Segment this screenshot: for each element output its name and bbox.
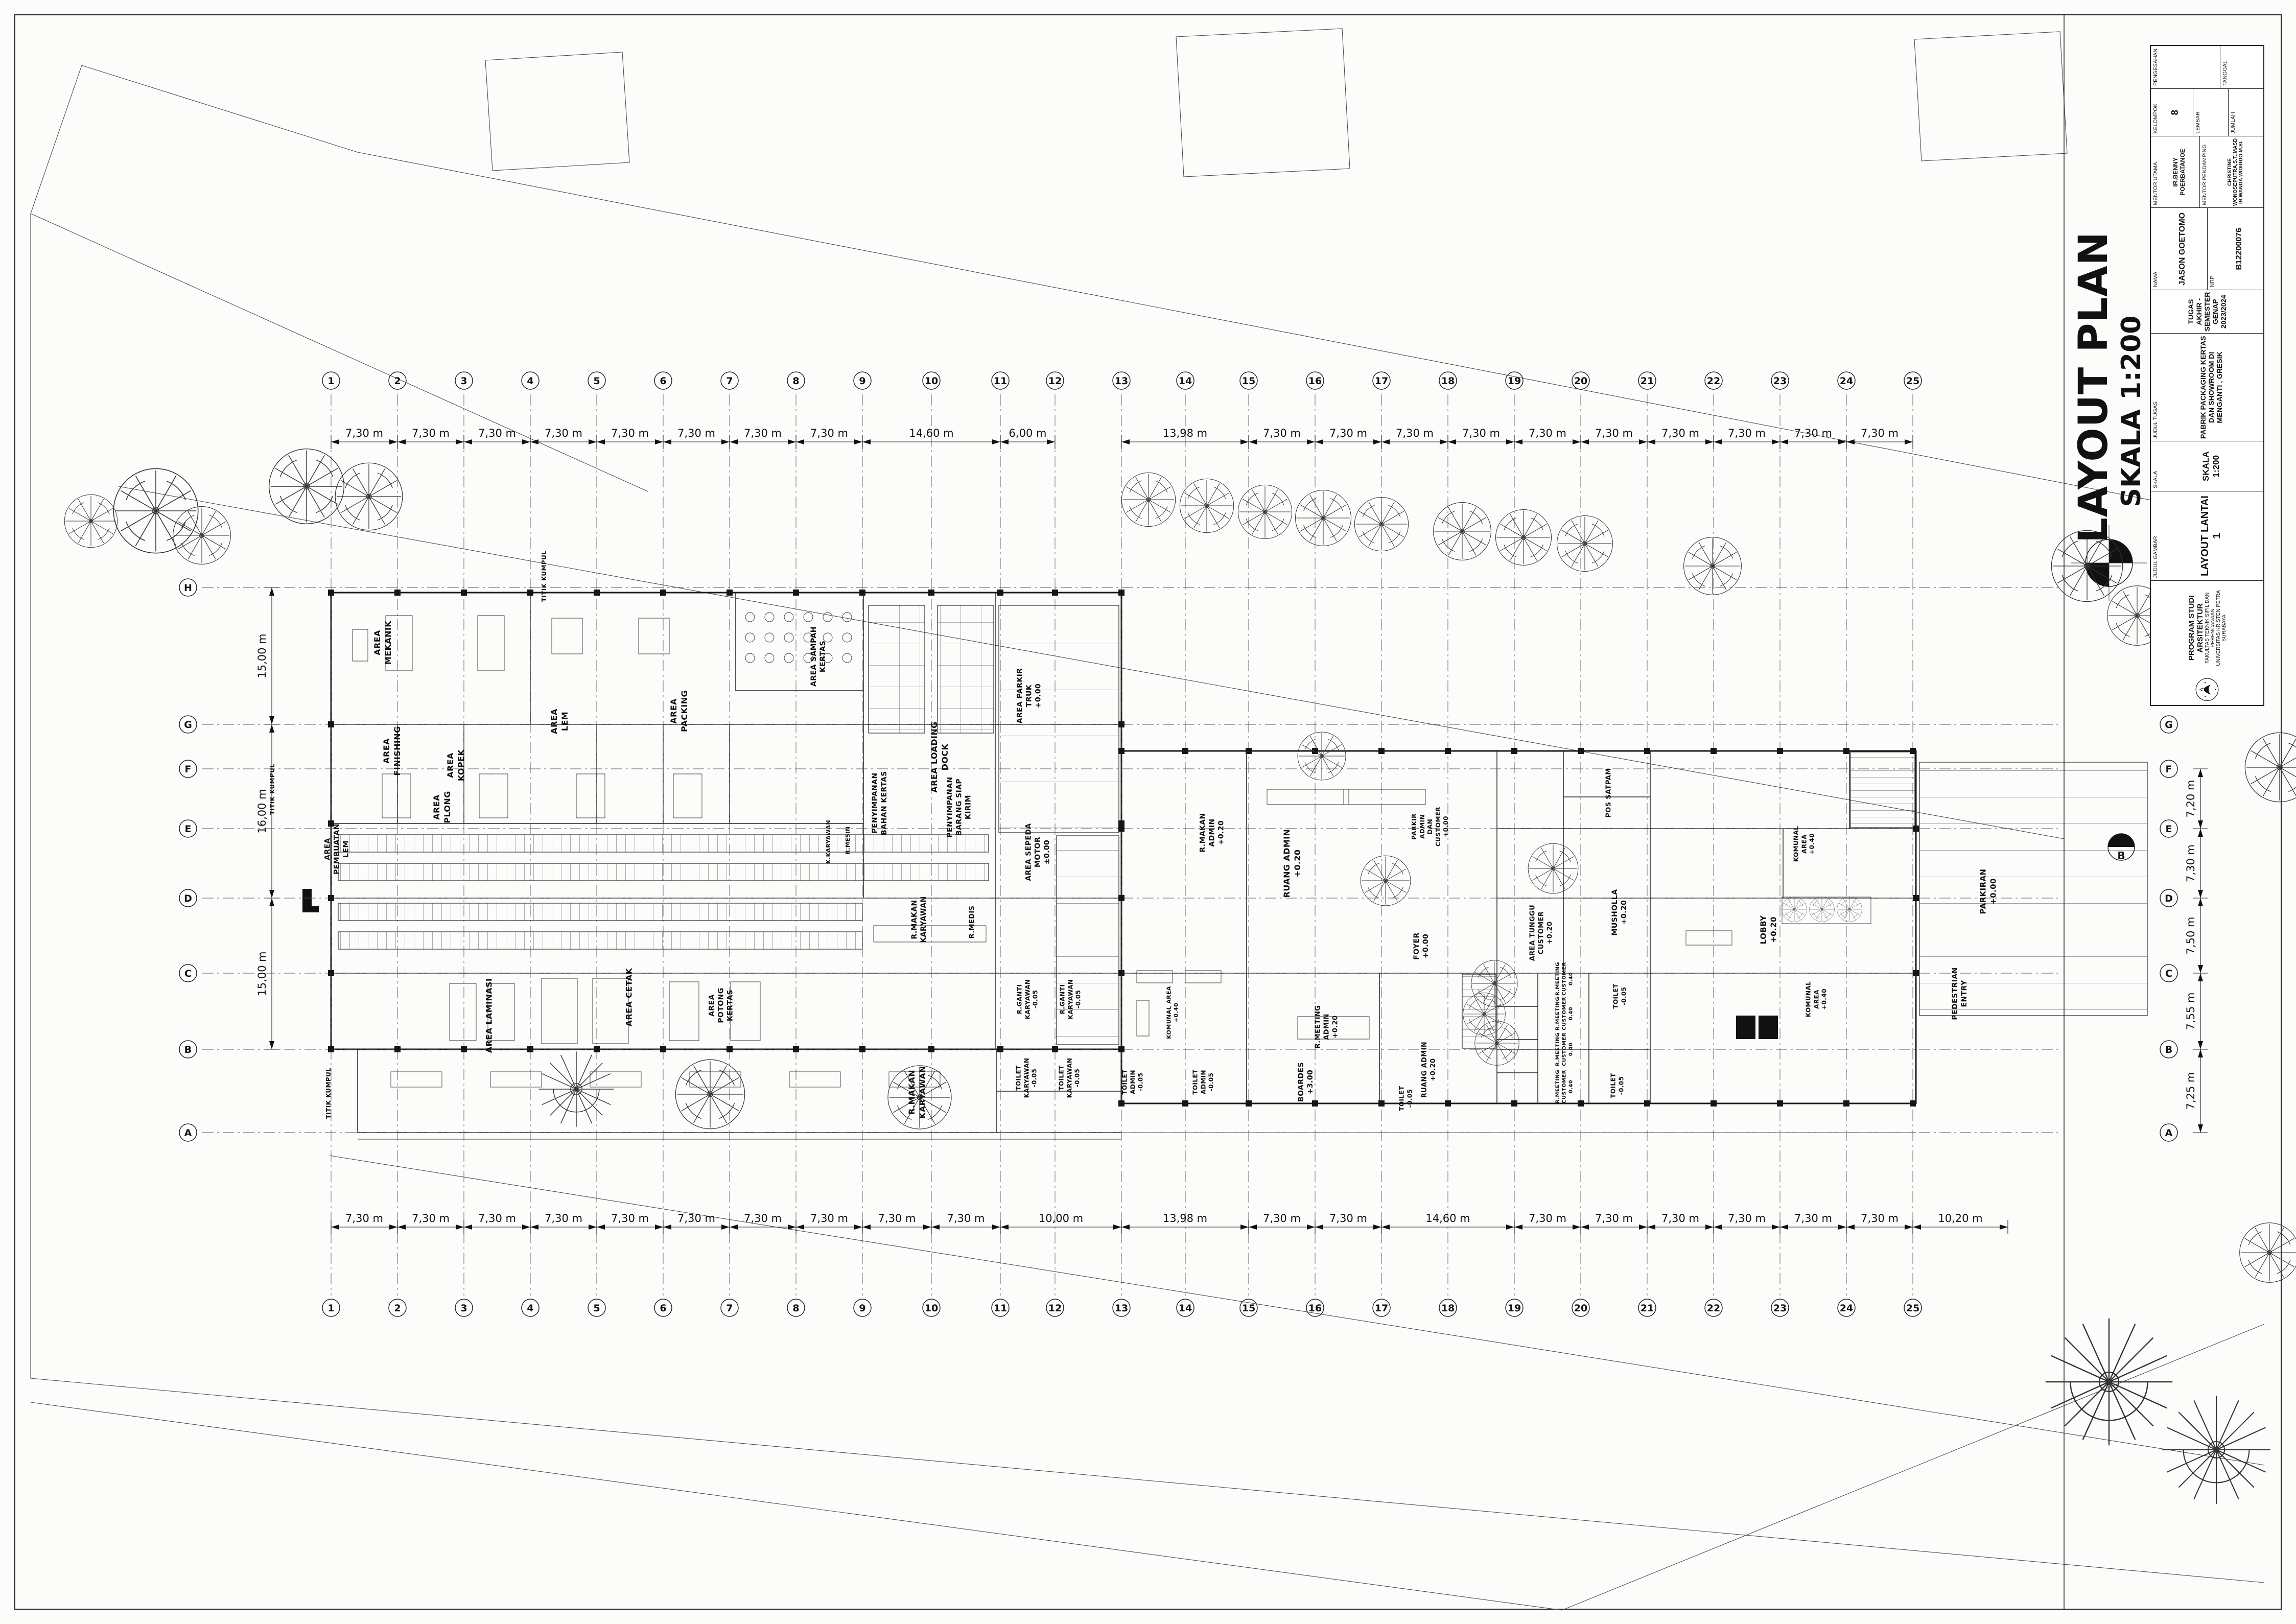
dimension-text: 7,30 m (1661, 427, 1699, 439)
dimension-text: 7,30 m (611, 1212, 649, 1225)
svg-text:4: 4 (527, 1303, 533, 1314)
column-marker (394, 1046, 401, 1052)
column-marker (1246, 748, 1252, 754)
tree-icon (2245, 733, 2296, 802)
svg-text:16: 16 (1308, 1303, 1322, 1314)
dimension-text: 7,30 m (947, 1212, 985, 1225)
kelompok-label: KELOMPOK (2151, 89, 2159, 136)
column-marker (328, 1046, 334, 1052)
city-name: SURABAYA (2221, 584, 2227, 672)
svg-text:12: 12 (1048, 1303, 1062, 1314)
skala-value: SKALA 1:200 (2159, 441, 2263, 490)
column-marker (1052, 590, 1058, 596)
tree-icon (888, 1066, 951, 1129)
judul-tugas-value: PABRIK PACKAGING KERTAS DAN SHOWROOM DI … (2159, 334, 2263, 441)
svg-text:22: 22 (1707, 1303, 1720, 1314)
column-marker (727, 1046, 733, 1052)
column-marker (1445, 1100, 1451, 1107)
column-marker (1913, 895, 1919, 901)
dimension-text: 7,30 m (878, 1212, 916, 1225)
lobby-planter (1782, 897, 1871, 924)
kelompok-row: KELOMPOK 8 (2151, 89, 2193, 136)
column-marker (1312, 1100, 1318, 1107)
column-marker (461, 1046, 467, 1052)
column-marker (1578, 748, 1584, 754)
column-marker (1118, 895, 1124, 901)
lift (1759, 1016, 1778, 1039)
approval-cell: PENGESAHAN TANGGAL (2151, 46, 2263, 88)
dimension-text: 7,55 m (2185, 993, 2197, 1030)
dimension-text: 7,30 m (1595, 427, 1633, 439)
dimension-text: 7,30 m (677, 1212, 715, 1225)
svg-text:11: 11 (994, 375, 1007, 387)
svg-text:25: 25 (1906, 1303, 1919, 1314)
tree-icon (1495, 509, 1551, 565)
svg-text:F: F (185, 764, 192, 775)
neighbour-buildings (485, 29, 2067, 177)
dimension-text: 7,30 m (412, 1212, 450, 1225)
mentor-pendamping-row: MENTOR PENDAMPING CHRISTINE WONOSEPUTRA,… (2200, 136, 2263, 207)
drawing-title: LAYOUT PLAN (2074, 231, 2114, 543)
dimension-text: 16,00 m (256, 789, 268, 833)
institution-cell: PROGRAM STUDI ARSITEKTUR FAKULTAS TEKNIK… (2151, 580, 2263, 705)
svg-text:25: 25 (1906, 375, 1919, 387)
dimension-text: 7,30 m (1263, 1212, 1301, 1225)
car-parking-stalls (1919, 762, 2147, 1016)
column-marker (1843, 1100, 1849, 1107)
canopy-lines (358, 1133, 1916, 1139)
svg-text:4: 4 (527, 375, 533, 387)
dimension-text: 13,98 m (1163, 427, 1207, 439)
storage-rack (338, 932, 862, 949)
svg-text:21: 21 (1641, 1303, 1654, 1314)
dimension-text: 7,30 m (1529, 1212, 1566, 1225)
column-marker (328, 895, 334, 901)
tanggal-value (2228, 46, 2263, 88)
tree-icon (269, 449, 344, 524)
storage-rack (338, 903, 862, 921)
column-marker (1378, 748, 1385, 754)
column-marker (1644, 1100, 1650, 1107)
column-marker (328, 590, 334, 596)
svg-text:24: 24 (1840, 375, 1853, 387)
tree-icon (64, 495, 117, 547)
column-marker (328, 721, 334, 727)
dimension-text: 7,30 m (1728, 427, 1766, 439)
svg-text:2: 2 (394, 375, 401, 387)
motorbike-stalls (1057, 836, 1119, 1045)
column-marker (1910, 1100, 1916, 1107)
svg-text:2: 2 (394, 1303, 401, 1314)
dimension-text: 7,30 m (1329, 1212, 1367, 1225)
dimension-text: 7,30 m (345, 427, 383, 439)
nama-label: NAMA (2151, 208, 2159, 290)
column-marker (1118, 1100, 1124, 1107)
svg-text:8: 8 (792, 1303, 799, 1314)
svg-text:12: 12 (1048, 375, 1062, 387)
faculty-name: FAKULTAS TEKNIK SIPIL DAN PERENCANAAN (2205, 584, 2216, 672)
dimension-text: 7,30 m (1396, 427, 1434, 439)
mentor-utama-label: MENTOR UTAMA (2151, 136, 2159, 207)
svg-text:14: 14 (1179, 375, 1192, 387)
datum-marker (302, 889, 319, 912)
storage-rack (338, 863, 989, 881)
truck-parking-stalls (999, 605, 1119, 833)
mentor-cell: MENTOR UTAMA IR.BENNY POERBATANOE MENTOR… (2151, 136, 2263, 207)
judul-tugas-cell: JUDUL TUGAS PABRIK PACKAGING KERTAS DAN … (2151, 333, 2263, 441)
svg-text:18: 18 (1441, 1303, 1455, 1314)
column-marker (660, 590, 666, 596)
column-marker (1052, 1046, 1058, 1052)
tree-icon (1782, 897, 1807, 922)
mentor-pendamping-1: CHRISTINE WONOSEPUTRA,S.T.,MASD (2227, 138, 2238, 206)
svg-text:23: 23 (1773, 1303, 1787, 1314)
svg-text:F: F (2166, 764, 2172, 775)
tree-icon (538, 1051, 614, 1126)
dimension-text: 14,60 m (1425, 1212, 1470, 1225)
dimension-text: 7,30 m (478, 1212, 516, 1225)
dimension-text: 7,30 m (1462, 427, 1500, 439)
svg-text:23: 23 (1773, 375, 1787, 387)
dimension-text: 10,00 m (1039, 1212, 1083, 1225)
svg-text:11: 11 (994, 1303, 1007, 1314)
drawing-sheet: B 11223344556677889910101111121213131414… (0, 0, 2296, 1624)
waste-paper-racks (869, 605, 925, 733)
tree-icon (1298, 732, 1346, 780)
svg-text:C: C (184, 968, 192, 979)
dimension-text: 7,30 m (1728, 1212, 1766, 1225)
svg-text:21: 21 (1641, 375, 1654, 387)
tree-icon (1238, 485, 1292, 538)
svg-text:20: 20 (1574, 375, 1587, 387)
column-marker (461, 590, 467, 596)
tree-icon (2046, 1319, 2172, 1445)
svg-text:3: 3 (460, 375, 467, 387)
tree-icon (335, 463, 403, 530)
mentor-pendamping-label: MENTOR PENDAMPING (2200, 136, 2208, 207)
svg-text:24: 24 (1840, 1303, 1853, 1314)
mentor-utama-value: IR.BENNY POERBATANOE (2159, 136, 2199, 207)
column-marker (660, 1046, 666, 1052)
course-cell: TUGAS AKHIR - SEMESTER GENAP 2023/2024 (2151, 290, 2263, 333)
column-marker (1578, 1100, 1584, 1107)
column-marker (1445, 748, 1451, 754)
dimension-text: 7,30 m (810, 1212, 848, 1225)
tanggal-row: TANGGAL (2220, 46, 2263, 88)
dimension-text: 7,25 m (2185, 1072, 2197, 1110)
tree-icon (1684, 537, 1742, 595)
column-marker (1118, 1046, 1124, 1052)
tree-icon (1180, 479, 1233, 532)
dimension-text: 7,30 m (677, 427, 715, 439)
column-marker (859, 1046, 865, 1052)
svg-text:10: 10 (925, 1303, 938, 1314)
nrp-label: NRP (2208, 208, 2215, 290)
column-marker (1118, 721, 1124, 727)
column-marker (793, 590, 799, 596)
jumlah-value (2236, 89, 2263, 136)
column-marker (1182, 748, 1188, 754)
dimension-text: 7,30 m (1263, 427, 1301, 439)
dimension-text: 7,30 m (1861, 427, 1899, 439)
dimension-text: 13,98 m (1163, 1212, 1207, 1225)
dimension-text: 14,60 m (909, 427, 953, 439)
judul-gambar-cell: JUDUL GAMBAR LAYOUT LANTAI 1 (2151, 491, 2263, 580)
svg-text:20: 20 (1574, 1303, 1587, 1314)
svg-text:19: 19 (1508, 1303, 1521, 1314)
svg-text:G: G (184, 719, 192, 731)
column-marker (997, 590, 1003, 596)
dimension-text: 7,30 m (1529, 427, 1566, 439)
svg-text:H: H (184, 582, 192, 594)
svg-text:17: 17 (1375, 375, 1388, 387)
svg-text:7: 7 (726, 375, 733, 387)
svg-text:E: E (2166, 823, 2172, 835)
column-marker (1913, 970, 1919, 976)
mentor-pendamping-2: IR.WANDA WIDIGDO,M.SI. (2238, 140, 2244, 204)
pengesahan-row: PENGESAHAN (2151, 46, 2220, 88)
svg-text:D: D (2165, 893, 2173, 904)
judul-gambar-label: JUDUL GAMBAR (2151, 491, 2159, 580)
svg-text:6: 6 (660, 1303, 666, 1314)
tree-icon (173, 507, 231, 564)
svg-text:9: 9 (859, 1303, 865, 1314)
column-marker (1246, 1100, 1252, 1107)
showroom-partitions (1121, 751, 1916, 1103)
floor-plan-drawing: B 11223344556677889910101111121213131414… (0, 0, 2296, 1624)
tanggal-label: TANGGAL (2220, 46, 2228, 88)
column-marker (527, 590, 533, 596)
dimension-text: 7,30 m (412, 427, 450, 439)
nrp-row: NRP B12200076 (2208, 208, 2264, 290)
dimension-text: 6,00 m (1009, 427, 1047, 439)
column-marker (1777, 748, 1783, 754)
dimension-text: 7,30 m (545, 1212, 582, 1225)
column-marker (928, 1046, 934, 1052)
dimension-text: 15,00 m (256, 633, 268, 678)
dimension-text: 7,20 m (2185, 780, 2197, 818)
svg-text:16: 16 (1308, 375, 1322, 387)
course-title: TUGAS AKHIR - SEMESTER GENAP 2023/2024 (2151, 290, 2263, 333)
column-marker (1843, 748, 1849, 754)
svg-text:A: A (184, 1127, 192, 1139)
kelompok-value: 8 (2159, 89, 2193, 136)
svg-text:7: 7 (726, 1303, 733, 1314)
petra-logo (2191, 677, 2223, 702)
svg-text:3: 3 (460, 1303, 467, 1314)
tree-icon (1354, 497, 1408, 551)
svg-text:E: E (185, 823, 192, 835)
column-marker (928, 590, 934, 596)
student-cell: NAMA JASON GOETOMO NRP B12200076 (2151, 207, 2263, 290)
dimension-text: 7,30 m (545, 427, 582, 439)
column-marker (394, 590, 401, 596)
jumlah-row: JUMLAH (2229, 89, 2263, 136)
column-marker (1118, 970, 1124, 976)
tree-icon (1121, 473, 1175, 526)
tree-icon (1528, 843, 1578, 893)
machines (353, 616, 760, 1044)
tree-icon (1837, 897, 1862, 922)
tree-icon (2162, 1396, 2270, 1504)
column-marker (1511, 748, 1517, 754)
lembar-label: LEMBAR (2193, 89, 2201, 136)
nama-row: NAMA JASON GOETOMO (2151, 208, 2208, 290)
stair-main (1850, 752, 1915, 828)
column-marker (997, 1046, 1003, 1052)
svg-text:14: 14 (1179, 1303, 1192, 1314)
svg-text:C: C (2165, 968, 2172, 979)
lembar-value (2201, 89, 2228, 136)
pengesahan-value (2159, 46, 2220, 88)
svg-text:8: 8 (792, 375, 799, 387)
column-marker (1644, 748, 1650, 754)
column-marker (793, 1046, 799, 1052)
column-marker (1777, 1100, 1783, 1107)
svg-text:1: 1 (327, 1303, 334, 1314)
svg-text:A: A (2165, 1127, 2173, 1139)
lembar-row: LEMBAR (2193, 89, 2229, 136)
svg-text:D: D (184, 893, 192, 904)
svg-text:1: 1 (327, 375, 334, 387)
dimension-text: 7,30 m (611, 427, 649, 439)
dimension-text: 7,30 m (478, 427, 516, 439)
pengesahan-label: PENGESAHAN (2151, 46, 2159, 88)
tree-icon (1434, 503, 1491, 560)
column-marker (1711, 748, 1717, 754)
column-marker (1910, 748, 1916, 754)
dimension-text: 7,50 m (2185, 917, 2197, 955)
svg-text:G: G (2165, 719, 2173, 731)
dimension-text: 7,30 m (744, 427, 782, 439)
dimension-text: 7,30 m (2185, 844, 2197, 882)
column-marker (1118, 590, 1124, 596)
svg-text:18: 18 (1441, 375, 1455, 387)
column-marker (1378, 1100, 1385, 1107)
column-marker (527, 1046, 533, 1052)
dimension-text: 10,20 m (1938, 1212, 1982, 1225)
program-name: PROGRAM STUDI ARSITEKTUR (2187, 584, 2205, 672)
showroom-outline (1121, 751, 1916, 1103)
jumlah-label: JUMLAH (2229, 89, 2236, 136)
column-marker (594, 590, 600, 596)
svg-text:19: 19 (1508, 375, 1521, 387)
dimension-text: 7,30 m (744, 1212, 782, 1225)
column-marker (1182, 1100, 1188, 1107)
dimension-text: 7,30 m (1794, 1212, 1832, 1225)
svg-text:B: B (2165, 1044, 2172, 1055)
dimension-text: 7,30 m (1661, 1212, 1699, 1225)
university-name: UNIVERSITAS KRISTEN PETRA (2216, 584, 2221, 672)
lift (1736, 1016, 1755, 1039)
column-marker (594, 1046, 600, 1052)
svg-text:17: 17 (1375, 1303, 1388, 1314)
judul-tugas-label: JUDUL TUGAS (2151, 334, 2159, 441)
dimension-text: 7,30 m (1595, 1212, 1633, 1225)
tree-icon (675, 1060, 744, 1128)
column-marker (727, 590, 733, 596)
column-marker (859, 590, 865, 596)
tree-icon (1810, 897, 1835, 922)
dimension-text: 7,30 m (1861, 1212, 1899, 1225)
tree-icon (1295, 490, 1351, 546)
nrp-value: B12200076 (2215, 208, 2264, 290)
judul-gambar-value: LAYOUT LANTAI 1 (2159, 491, 2263, 580)
column-marker (1118, 748, 1124, 754)
tree-icon (2240, 1223, 2296, 1283)
column-marker (1511, 1100, 1517, 1107)
svg-text:B: B (184, 1044, 192, 1055)
skala-label: SKALA (2151, 441, 2159, 490)
dimension-text: 7,30 m (1794, 427, 1832, 439)
column-marker (1711, 1100, 1717, 1107)
svg-text:9: 9 (859, 375, 865, 387)
dimension-text: 15,00 m (256, 951, 268, 996)
storage-rack (338, 835, 989, 852)
title-block: PROGRAM STUDI ARSITEKTUR FAKULTAS TEKNIK… (2150, 45, 2264, 706)
mentor-utama-row: MENTOR UTAMA IR.BENNY POERBATANOE (2151, 136, 2200, 207)
svg-text:15: 15 (1242, 375, 1255, 387)
svg-text:6: 6 (660, 375, 666, 387)
nama-value: JASON GOETOMO (2159, 208, 2207, 290)
column-marker (328, 820, 334, 827)
svg-text:15: 15 (1242, 1303, 1255, 1314)
column-marker (1118, 826, 1124, 832)
drawing-scale: SKALA 1:200 (2118, 316, 2145, 507)
column-marker (328, 970, 334, 976)
tree-icon (113, 468, 198, 553)
svg-text:13: 13 (1115, 375, 1128, 387)
svg-text:13: 13 (1115, 1303, 1128, 1314)
column-marker (1913, 826, 1919, 832)
dimension-text: 7,30 m (1329, 427, 1367, 439)
dimension-text: 7,30 m (810, 427, 848, 439)
waste-paper-racks (938, 605, 994, 733)
tree-icon (1557, 515, 1612, 571)
dimension-text: 7,30 m (345, 1212, 383, 1225)
svg-text:10: 10 (925, 375, 938, 387)
svg-text:22: 22 (1707, 375, 1720, 387)
svg-text:5: 5 (593, 375, 600, 387)
skala-cell: SKALA SKALA 1:200 (2151, 441, 2263, 490)
svg-text:5: 5 (593, 1303, 600, 1314)
svg-text:B: B (2117, 850, 2125, 862)
sheet-info-cell: KELOMPOK 8 LEMBAR JUMLAH (2151, 88, 2263, 136)
